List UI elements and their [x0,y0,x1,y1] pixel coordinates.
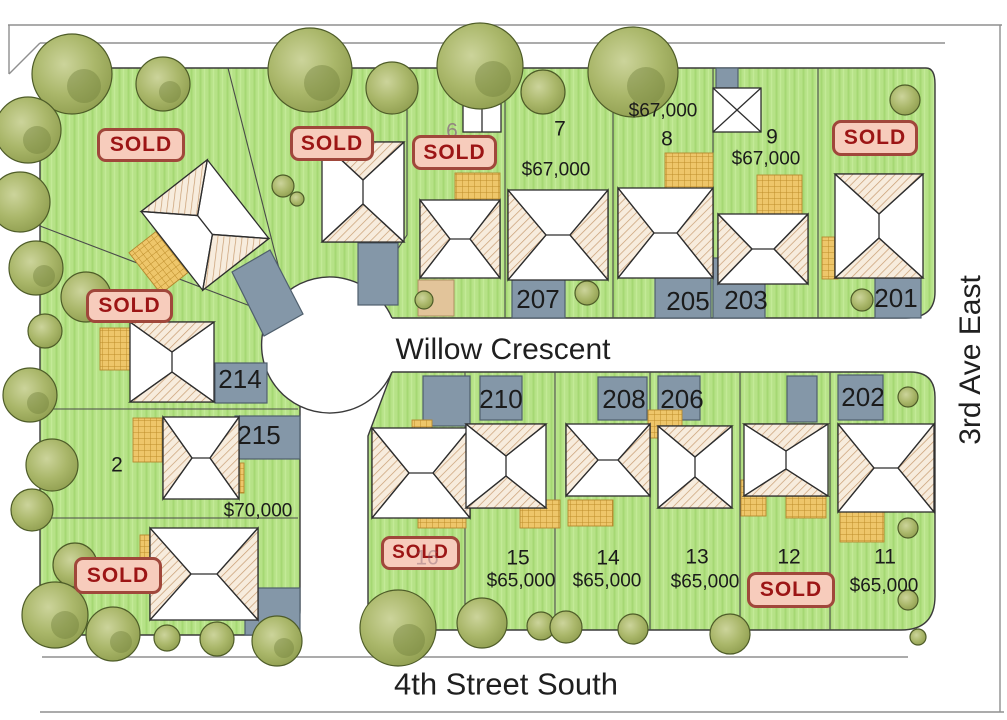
house-number-215: 215 [237,422,280,448]
bush-icon [910,629,926,645]
tree-icon [890,85,920,115]
bush-icon [575,281,599,305]
lot-number-13: 13 [685,547,708,568]
tree-icon [3,368,57,422]
tree-icon [9,241,63,295]
bush-icon [851,289,873,311]
patio [568,500,613,526]
bush-icon [898,387,918,407]
lot-price-13: $65,000 [671,573,740,592]
bush-icon [290,192,304,206]
tree-icon [366,62,418,114]
lot-number-12: 12 [777,547,800,568]
bush-icon [898,518,918,538]
sold-sign-lot-3: SOLD [74,557,162,594]
house-number-202: 202 [841,384,884,410]
lot-number-9: 9 [766,127,778,148]
tree-icon [86,607,140,661]
tree-icon [28,314,62,348]
house [466,424,546,508]
house [130,322,214,402]
lot-price-14: $65,000 [573,572,642,591]
sold-sign-lot-10: SOLD [832,120,918,156]
house [718,214,808,284]
faint-lot-number-16: 16 [415,548,438,569]
house [838,424,934,512]
lot-number-8: 8 [661,129,673,150]
driveway [358,243,398,305]
house [658,426,732,508]
lot-number-15: 15 [506,548,529,569]
street-label-4th-street-south: 4th Street South [394,669,618,700]
tree-icon [521,70,565,114]
house-number-205: 205 [666,288,709,314]
patio [100,328,130,370]
lot-number-2: 2 [111,455,123,476]
house-number-207: 207 [516,286,559,312]
tree-icon [154,625,180,651]
bush-icon [415,291,433,309]
tree-icon [710,614,750,654]
lot-number-11: 11 [874,547,896,568]
house [566,424,650,496]
house-number-214: 214 [218,366,261,392]
sold-sign-lot-6: SOLD [412,135,497,170]
lot-price-11: $65,000 [850,577,919,596]
house-number-210: 210 [479,386,522,412]
patio [840,512,884,542]
lot-number-14: 14 [596,548,619,569]
tree-icon [618,614,648,644]
tree-icon [360,590,436,666]
lot-number-7: 7 [554,119,566,140]
tree-icon [26,439,78,491]
patio [133,418,162,462]
sold-sign-lot-12: SOLD [747,572,835,608]
lot-price-7: $67,000 [522,161,591,180]
tree-icon [550,611,582,643]
sold-sign-lot-nw-corner: SOLD [97,128,185,162]
house [508,190,608,280]
tree-icon [11,489,53,531]
house-number-208: 208 [602,386,645,412]
house [420,200,500,278]
sold-sign-lot-5: SOLD [290,126,374,161]
street-label-3rd-ave-east: 3rd Ave East [956,275,986,445]
house [744,424,828,496]
house [372,428,470,518]
driveway [716,68,738,88]
house [150,528,258,620]
shed [713,88,761,132]
patio [665,153,713,189]
tree-icon [200,622,234,656]
lot-price-8: $67,000 [629,102,698,121]
house [618,188,713,278]
lot-price-15: $65,000 [487,572,556,591]
driveway [787,376,817,422]
house [163,417,239,499]
subdivision-site-plan: Willow Crescent 4th Street South 3rd Ave… [0,0,1007,720]
bush-icon [272,175,294,197]
sold-sign-lot-1: SOLD [86,289,173,323]
house [835,174,923,278]
house-number-201: 201 [874,285,917,311]
house-number-203: 203 [724,287,767,313]
driveway [423,376,470,426]
tree-icon [457,598,507,648]
lot-price-2: $70,000 [224,502,293,521]
street-label-willow-crescent: Willow Crescent [395,335,610,365]
tree-icon [437,23,523,109]
lot-price-9: $67,000 [732,150,801,169]
house-number-206: 206 [660,386,703,412]
